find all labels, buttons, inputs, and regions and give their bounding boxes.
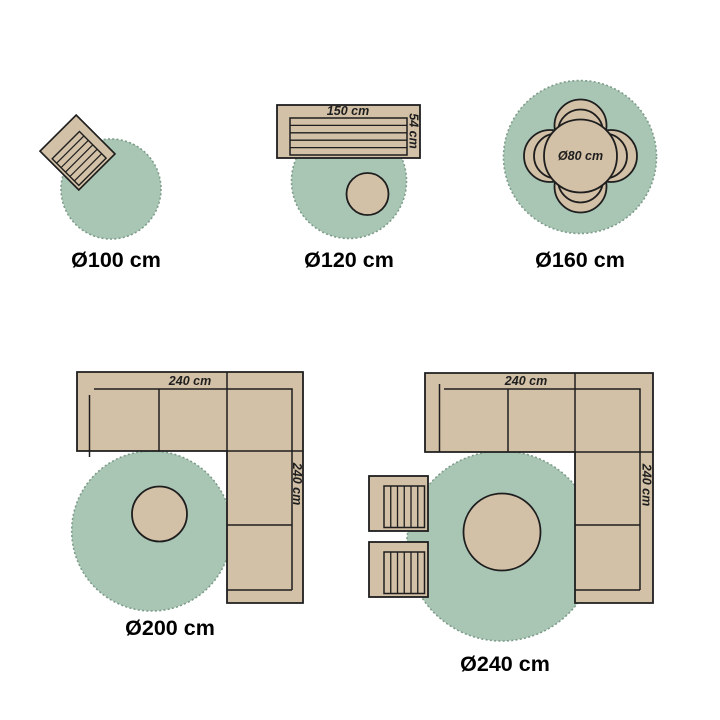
sofa-depth-dimension-label: 240 cm bbox=[640, 463, 654, 506]
bench-depth-dimension-label: 54 cm bbox=[407, 113, 421, 148]
table-diameter-label: Ø80 cm bbox=[558, 149, 603, 163]
coffee-table bbox=[132, 487, 187, 542]
size-label-120: Ø120 cm bbox=[304, 248, 394, 272]
figure-rug-200: 240 cm 240 cm Ø200 cm bbox=[72, 372, 304, 640]
size-label-100: Ø100 cm bbox=[71, 248, 161, 272]
bench-width-dimension-label: 150 cm bbox=[327, 104, 369, 118]
figure-rug-240: 240 cm 240 cm Ø240 cm bbox=[369, 373, 654, 676]
sofa-width-dimension-label: 240 cm bbox=[504, 374, 547, 388]
size-label-240: Ø240 cm bbox=[460, 652, 550, 676]
sofa-depth-dimension-label: 240 cm bbox=[290, 462, 304, 505]
sofa-width-dimension-label: 240 cm bbox=[168, 374, 211, 388]
figure-rug-120: 150 cm 54 cm Ø120 cm bbox=[277, 104, 421, 272]
rug-size-diagram: Ø100 cm 150 cm 54 cm Ø120 cm bbox=[0, 0, 720, 720]
figure-rug-100: Ø100 cm bbox=[40, 115, 161, 272]
garden-chair-lower bbox=[369, 542, 428, 597]
side-table bbox=[347, 173, 389, 215]
figure-rug-160: Ø80 cm Ø160 cm bbox=[504, 81, 657, 273]
size-label-160: Ø160 cm bbox=[535, 248, 625, 272]
size-label-200: Ø200 cm bbox=[125, 616, 215, 640]
coffee-table bbox=[464, 494, 541, 571]
garden-chair-upper bbox=[369, 476, 428, 531]
